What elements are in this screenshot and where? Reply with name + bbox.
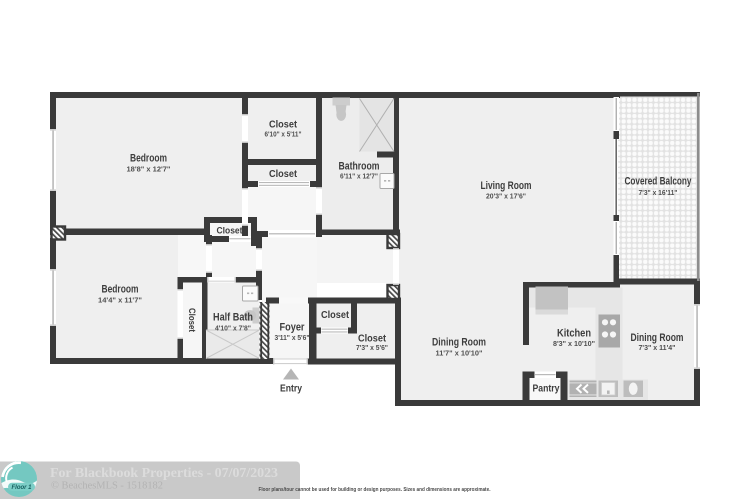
svg-text:Closet: Closet [217, 226, 244, 237]
svg-text:Floor plans/tour cannot be use: Floor plans/tour cannot be used for buil… [259, 487, 492, 493]
svg-text:6'10" x 5'11": 6'10" x 5'11" [265, 131, 302, 139]
svg-text:Half Bath: Half Bath [213, 312, 253, 324]
svg-text:Bedroom: Bedroom [130, 153, 167, 165]
svg-text:Closet: Closet [269, 120, 298, 131]
svg-text:14'4" x 11'7": 14'4" x 11'7" [98, 297, 142, 305]
svg-text:Floor 1: Floor 1 [11, 485, 32, 491]
svg-text:Pantry: Pantry [533, 384, 560, 395]
svg-text:4'10" x 7'8": 4'10" x 7'8" [215, 325, 251, 333]
svg-text:Bathroom: Bathroom [339, 161, 380, 173]
svg-text:Closet: Closet [269, 169, 298, 180]
svg-text:© BeachesMLS - 1518182: © BeachesMLS - 1518182 [51, 481, 163, 492]
svg-text:Bedroom: Bedroom [102, 284, 139, 296]
svg-text:Closet: Closet [321, 310, 350, 321]
svg-text:Dining Room: Dining Room [631, 332, 684, 344]
svg-text:8'3" x 10'10": 8'3" x 10'10" [553, 340, 595, 348]
svg-text:18'8" x 12'7": 18'8" x 12'7" [127, 166, 171, 174]
svg-text:7'3" x 5'6": 7'3" x 5'6" [356, 344, 388, 352]
svg-text:3'11" x 5'6": 3'11" x 5'6" [275, 334, 310, 342]
svg-text:Kitchen: Kitchen [557, 328, 591, 340]
svg-text:Dining Room: Dining Room [432, 337, 486, 349]
svg-text:For Blackbook Properties - 07/: For Blackbook Properties - 07/07/2023 [50, 465, 278, 480]
svg-text:Covered Balcony: Covered Balcony [625, 176, 692, 188]
svg-text:7'3" x 11'4": 7'3" x 11'4" [639, 344, 676, 352]
svg-text:20'3" x 17'6": 20'3" x 17'6" [486, 193, 526, 201]
svg-text:Foyer: Foyer [280, 322, 305, 334]
svg-text:11'7" x 10'10": 11'7" x 10'10" [436, 350, 483, 358]
svg-text:6'11" x 12'7": 6'11" x 12'7" [340, 173, 378, 181]
svg-text:Entry: Entry [280, 384, 302, 395]
svg-text:Closet: Closet [358, 334, 387, 345]
svg-text:Closet: Closet [187, 308, 197, 332]
svg-text:7'3" x 16'11": 7'3" x 16'11" [639, 189, 678, 197]
svg-text:Living Room: Living Room [481, 180, 532, 192]
